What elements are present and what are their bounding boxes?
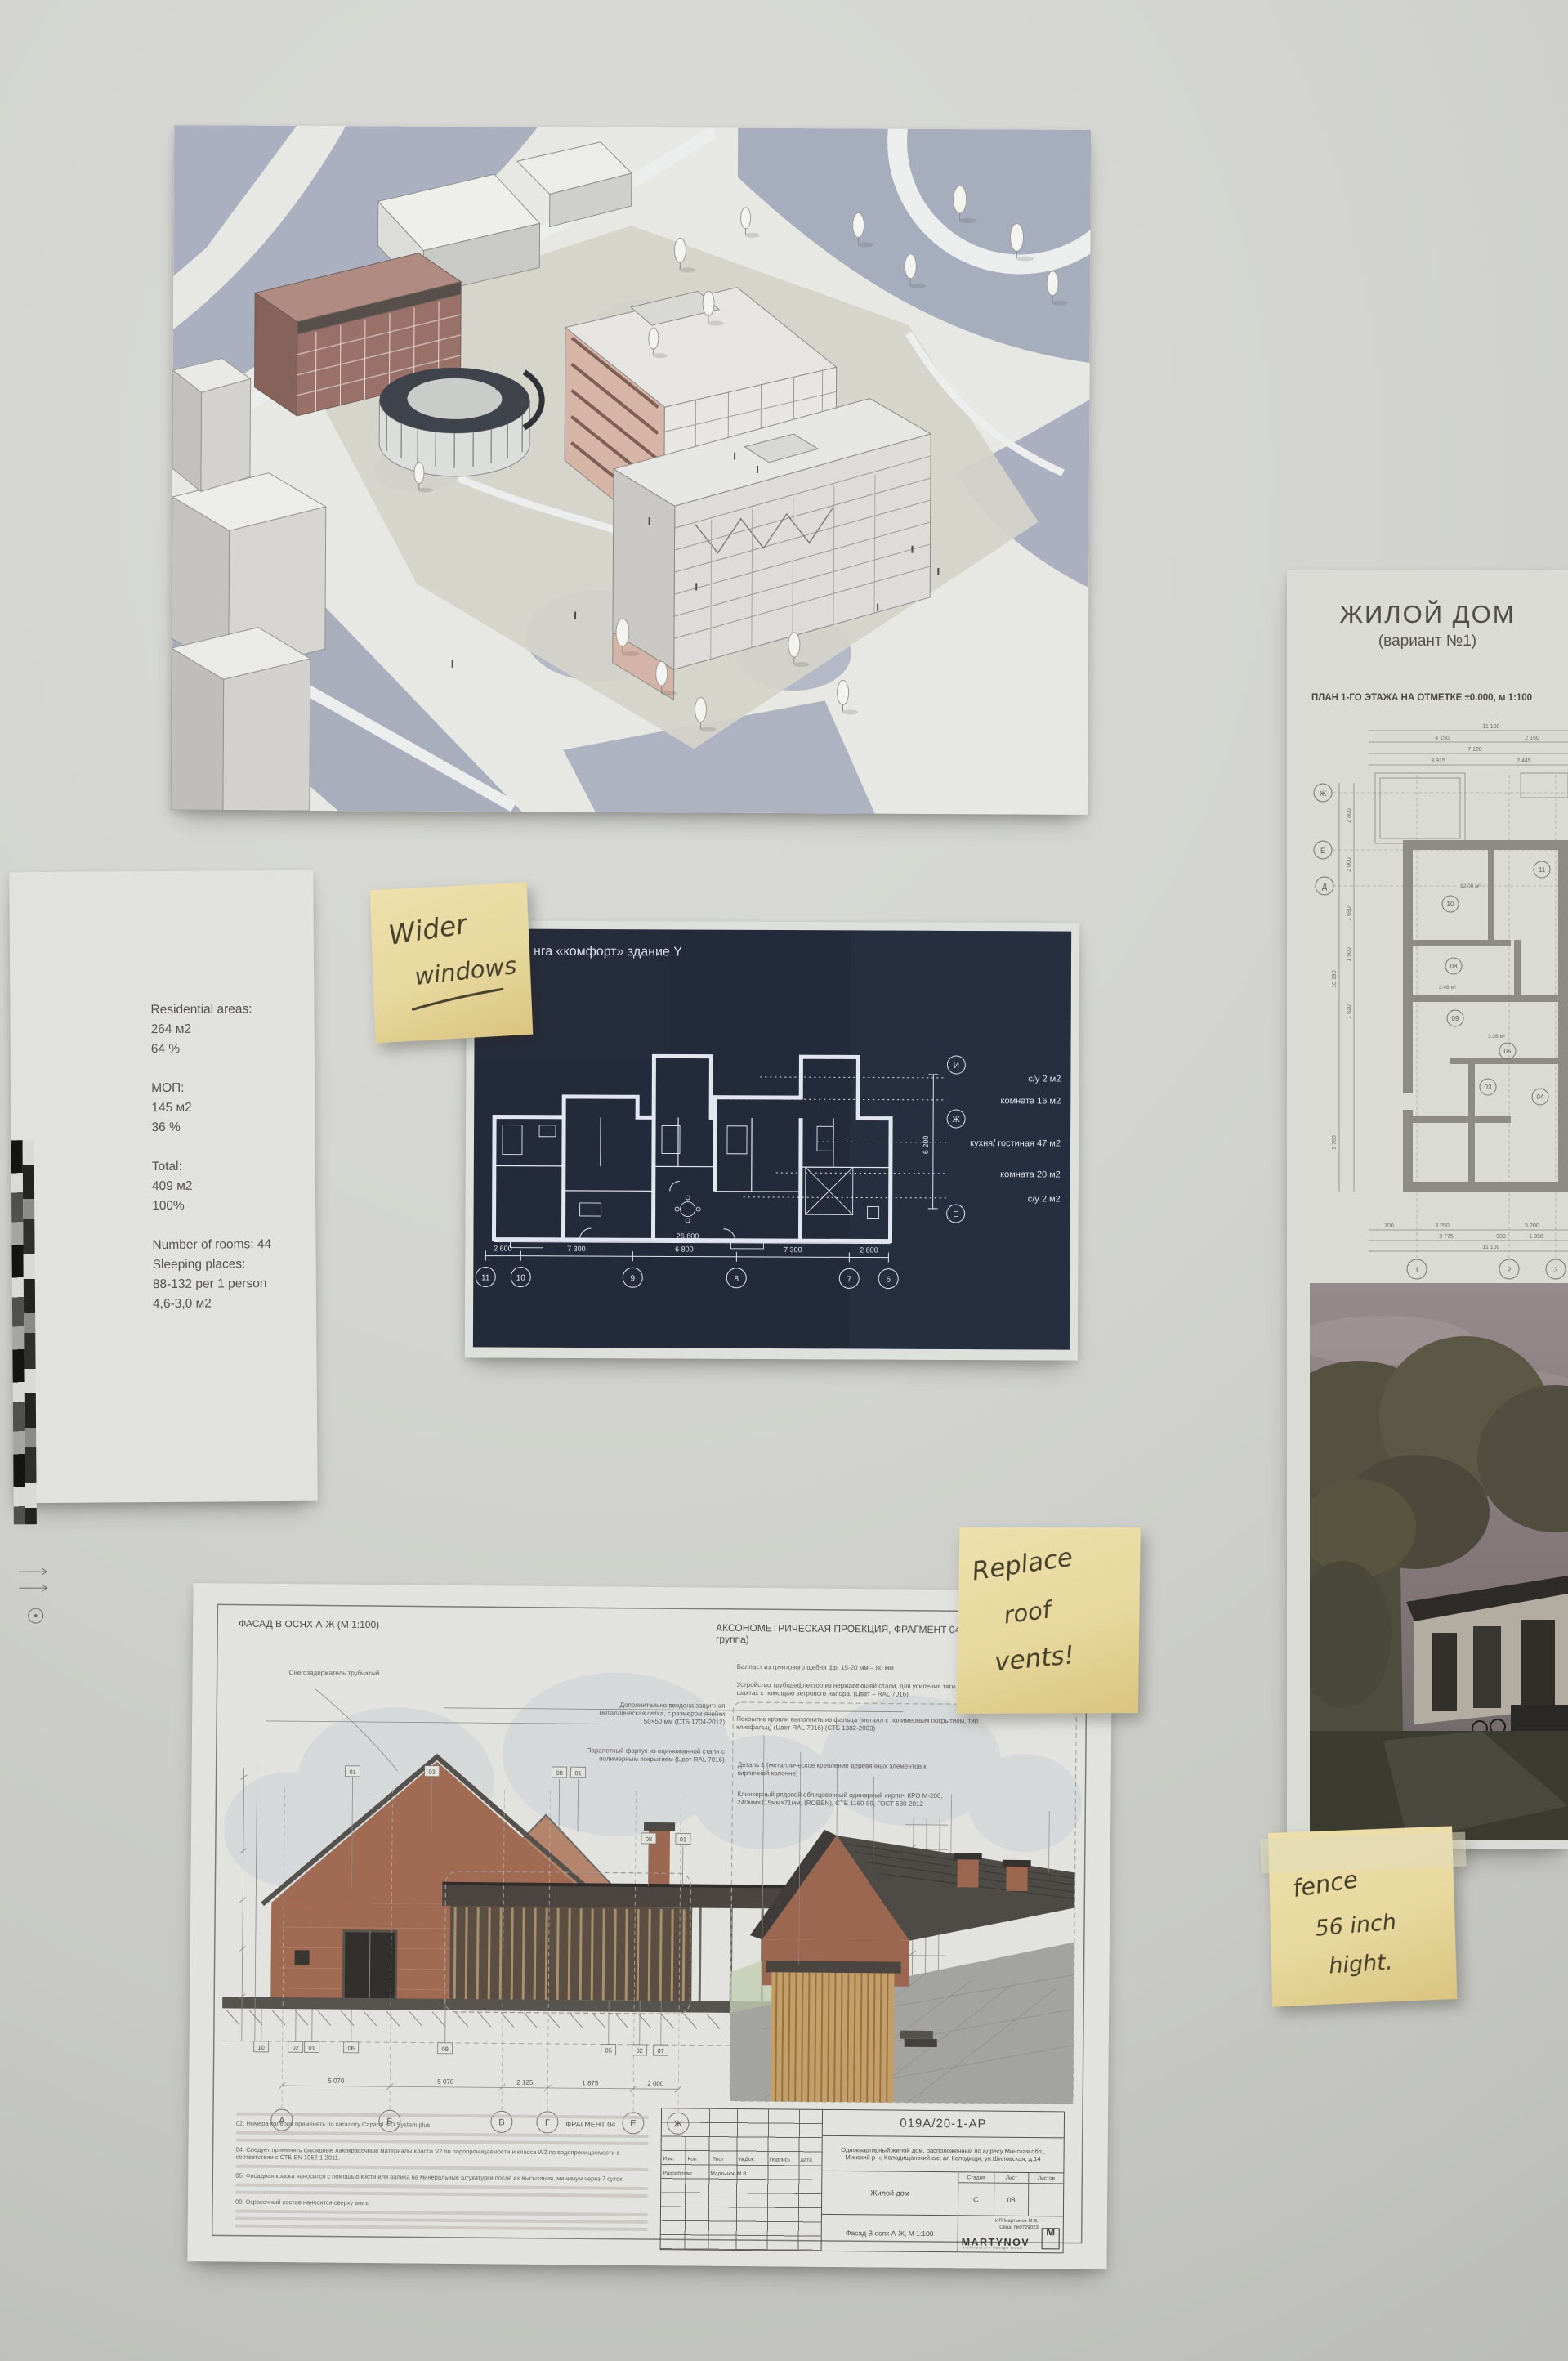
wall: Residential areas: 264 м2 64 % МОП: 145 … [0,0,1568,2361]
svg-text:7 300: 7 300 [784,1245,802,1254]
stat-line: 64 % [151,1039,306,1059]
svg-text:08: 08 [646,1836,652,1843]
svg-text:05: 05 [605,2047,611,2055]
svg-text:10: 10 [257,2044,264,2051]
svg-text:05: 05 [1504,1048,1512,1055]
stat-line: 4,6-3,0 м2 [153,1294,308,1314]
svg-text:5 070: 5 070 [328,2077,345,2085]
house-plan-drawing: Ж Е Д 1 2 3 11 100 4 150 2 150 7 120 3 9… [1287,570,1568,1281]
svg-text:02: 02 [292,2044,298,2051]
tb-developed-by: Мартынов М.В. [710,2171,748,2177]
svg-text:3 775: 3 775 [1439,1234,1454,1240]
tb-license: Свид. №0729023 [999,2225,1039,2231]
caption-facade: ФАСАД В ОСЯХ А-Ж (М 1:100) [239,1618,379,1631]
tb-firm-block: ИП Мартынов М.В. Свид. №0729023 MARTYNOV… [958,2216,1063,2252]
svg-text:Ж: Ж [952,1116,960,1125]
svg-text:03: 03 [428,1769,435,1776]
svg-text:04: 04 [1537,1093,1544,1101]
svg-text:1 875: 1 875 [582,2079,599,2086]
stat-line: 409 м2 [152,1176,307,1196]
svg-text:3.48 м²: 3.48 м² [1439,985,1457,990]
svg-text:roof: roof [1002,1595,1055,1630]
handwriting-replace-roof-vents: Replace roof vents! [952,1523,1143,1719]
svg-text:2 600: 2 600 [1347,808,1352,823]
svg-text:2 150: 2 150 [1525,736,1539,741]
svg-text:10: 10 [1447,901,1454,908]
logo-mark-icon: M [1042,2228,1060,2249]
axis-labels: Ж Е Д 1 2 3 [1320,789,1558,1274]
svg-text:02: 02 [636,2047,642,2055]
tb-description: Одноквартирный жилой дом, расположенный … [822,2136,1063,2174]
svg-text:01: 01 [574,1769,581,1777]
svg-text:И: И [954,1062,959,1071]
logo-tagline: architecture design wood [963,2244,1023,2251]
svg-text:11 100: 11 100 [1483,724,1500,730]
svg-text:03: 03 [1485,1084,1492,1091]
svg-text:09: 09 [441,2046,448,2053]
note-line: 05. Фасадная краска наносится с помощью … [235,2172,648,2183]
note-line: 09. Окрасочный состав наносится сверху в… [235,2198,648,2209]
svg-text:6: 6 [886,1276,891,1285]
svg-text:11 100: 11 100 [1483,1245,1500,1250]
svg-text:3 915: 3 915 [1431,758,1445,764]
sticky-note-replace-roof-vents: Replace roof vents! [952,1523,1143,1719]
tb-sheets-value [1028,2184,1063,2216]
calibration-strip-2 [23,1140,37,1524]
svg-text:5 200: 5 200 [1525,1223,1539,1229]
svg-text:Д: Д [1322,883,1327,891]
stat-line: 100% [152,1196,307,1216]
svg-text:3 250: 3 250 [1435,1223,1450,1229]
annotation: Парапетный фартук из оцинкованной стали … [584,1746,725,1764]
leader-marks [17,1563,75,1637]
handwriting-wider-windows: Wider windows [368,882,534,1043]
svg-text:12.00 м²: 12.00 м² [1460,883,1481,889]
svg-text:7 120: 7 120 [1467,747,1482,753]
dim-total: 26 600 [677,1232,699,1240]
title-block-revision-table: Изм. Кол. Лист №Док. Подпись Дата Разраб… [661,2108,823,2251]
stat-line: МОП: [151,1078,306,1098]
svg-text:2 125: 2 125 [516,2079,534,2086]
svg-text:11: 11 [1539,866,1546,874]
svg-text:3: 3 [1553,1266,1557,1274]
dims-top: 11 100 4 150 2 150 7 120 3 915 2 445 [1431,724,1539,764]
svg-text:с/у 2 м2: с/у 2 м2 [1028,1194,1061,1204]
handwriting-fence-height: fence 56 inch hight. [1265,1826,1457,2006]
dims-bottom: 700 3 250 5 200 3 775 900 1 398 11 100 [1384,1223,1543,1250]
svg-text:08: 08 [556,1769,562,1777]
annotation: Клинкерный рядовой облицовочный одинарны… [737,1791,949,1809]
plan-walls [1403,840,1568,1192]
svg-text:2 000: 2 000 [647,2080,664,2087]
svg-text:2: 2 [1507,1266,1511,1274]
svg-text:8: 8 [734,1275,739,1284]
site-plan-poster [171,125,1091,815]
svg-text:7 300: 7 300 [567,1245,586,1253]
svg-text:3 760: 3 760 [1332,1135,1338,1150]
statistics-text: Residential areas: 264 м2 64 % МОП: 145 … [150,999,308,1334]
room-numbers: 10 11 08 09 03 05 04 [1442,861,1550,1105]
svg-text:6 800: 6 800 [675,1245,694,1253]
tb-stage-label: Стадия [958,2172,994,2183]
svg-text:7: 7 [847,1275,851,1284]
svg-text:01: 01 [680,1836,686,1843]
tb-header: №Док. [739,2157,755,2162]
stat-line: Sleeping places: [153,1254,308,1275]
svg-text:1 820: 1 820 [1347,1004,1352,1019]
svg-text:комната 20 м2: комната 20 м2 [1000,1169,1061,1179]
tb-doc-number: 019А/20-1-АР [823,2110,1064,2139]
stat-line: Number of rooms: 44 [152,1235,307,1255]
svg-text:56 inch: 56 inch [1314,1910,1397,1942]
tb-stage-sheet: Стадия Лист Листов С 08 [958,2172,1063,2216]
stat-line: 145 м2 [151,1098,306,1118]
svg-text:2 600: 2 600 [494,1245,512,1253]
residential-house-plan-poster: ЖИЛОЙ ДОМ (вариант №1) ПЛАН 1-ГО ЭТАЖА Н… [1287,570,1568,1849]
svg-text:Replace: Replace [970,1543,1074,1587]
tb-header: Дата [800,2158,811,2163]
stat-line: 264 м2 [151,1019,306,1040]
svg-text:2 000: 2 000 [1347,857,1352,872]
dim-vertical: 6 200 [922,1136,930,1155]
tb-header: Подпись [769,2157,790,2162]
building-round-pavilion [379,367,542,476]
svg-text:Wider: Wider [386,908,471,951]
blueprint-title: нга «комфорт» здание Y [534,945,682,959]
svg-text:10: 10 [516,1274,526,1283]
svg-text:1 690: 1 690 [1347,906,1352,921]
svg-text:3.26 м²: 3.26 м² [1488,1034,1506,1040]
annotation: Дополнительно введена защитная металличе… [584,1701,725,1726]
svg-text:1: 1 [1414,1266,1418,1274]
svg-text:1 500: 1 500 [1347,947,1352,962]
svg-text:10 190: 10 190 [1332,970,1338,988]
tb-firm-name: ИП Мартынов М.В. [995,2219,1039,2225]
svg-text:01: 01 [349,1769,355,1776]
house-dusk-photo: MARTYNOV ARCHITECT [1310,1283,1568,1840]
svg-text:с/у 2 м2: с/у 2 м2 [1028,1074,1061,1084]
svg-text:fence: fence [1291,1865,1360,1903]
title-block: Изм. Кол. Лист №Док. Подпись Дата Разраб… [660,2108,1065,2253]
note-line: 04. Следует применять фасадные лакокрасо… [235,2146,648,2164]
tb-header: Кол. [687,2156,698,2162]
tb-sheets-label: Листов [1029,2173,1064,2184]
note-line: 02. Номера колеров применять по каталогу… [236,2120,649,2131]
stat-line: Total: [152,1156,307,1177]
svg-text:4 150: 4 150 [1435,736,1450,741]
tb-sheet-value: 08 [994,2184,1029,2216]
svg-text:hight.: hight. [1328,1949,1393,1979]
svg-text:комната 16 м2: комната 16 м2 [1001,1096,1061,1106]
svg-text:08: 08 [1450,963,1458,970]
svg-text:5 070: 5 070 [437,2078,454,2086]
svg-text:кухня/ гостиная 47 м2: кухня/ гостиная 47 м2 [970,1138,1061,1148]
tb-object-name: Жилой дом [822,2171,958,2215]
svg-text:11: 11 [481,1273,490,1282]
dims-left: 2 600 2 000 1 690 1 500 1 820 10 190 3 7… [1332,808,1352,1150]
svg-text:vents!: vents! [994,1640,1076,1677]
sticky-note-wider-windows: Wider windows [368,882,534,1043]
svg-text:1 398: 1 398 [1529,1234,1543,1240]
blueprint-floor-plan: нга «комфорт» здание Y [465,920,1079,1360]
blueprint-drawing: нга «комфорт» здание Y [465,920,1079,1360]
svg-text:700: 700 [1384,1223,1394,1229]
svg-text:Ж: Ж [1320,789,1327,798]
area-statistics-sheet: Residential areas: 264 м2 64 % МОП: 145 … [9,870,317,1504]
sticky-note-fence-height: fence 56 inch hight. [1265,1826,1457,2006]
svg-text:windows: windows [413,951,518,990]
svg-text:2 600: 2 600 [860,1245,878,1254]
svg-text:01: 01 [308,2044,315,2051]
svg-text:9: 9 [630,1274,635,1283]
svg-text:2 445: 2 445 [1517,758,1531,764]
general-notes: 02. Номера колеров применять по каталогу… [235,2108,649,2235]
annotation: Покрытие кровли выполнить из фальца (мет… [736,1715,1014,1734]
svg-text:Е: Е [1320,847,1325,855]
tb-header: Изм. [663,2156,674,2162]
stat-line: Residential areas: [150,999,306,1020]
svg-text:900: 900 [1496,1234,1506,1240]
site-render-illustration [171,125,1091,815]
svg-text:09: 09 [1452,1015,1459,1022]
tb-drawing-name: Фасад В осях А-Ж, М 1:100 [822,2215,958,2251]
tb-stage-value: С [958,2183,994,2215]
tb-developed-label: Разработал [663,2171,691,2176]
tb-sheet-label: Лист [994,2173,1029,2184]
svg-text:Е: Е [953,1210,958,1219]
tb-header: Лист [712,2157,723,2162]
svg-text:07: 07 [657,2047,663,2055]
svg-text:06: 06 [347,2045,354,2052]
stat-line: 36 % [151,1117,306,1138]
annotation: Деталь 1 (металлическое крепление деревя… [738,1761,950,1779]
stat-line: 88-132 per 1 person [153,1274,308,1295]
annotation: Снегозадержатель трубчатый [289,1669,387,1678]
